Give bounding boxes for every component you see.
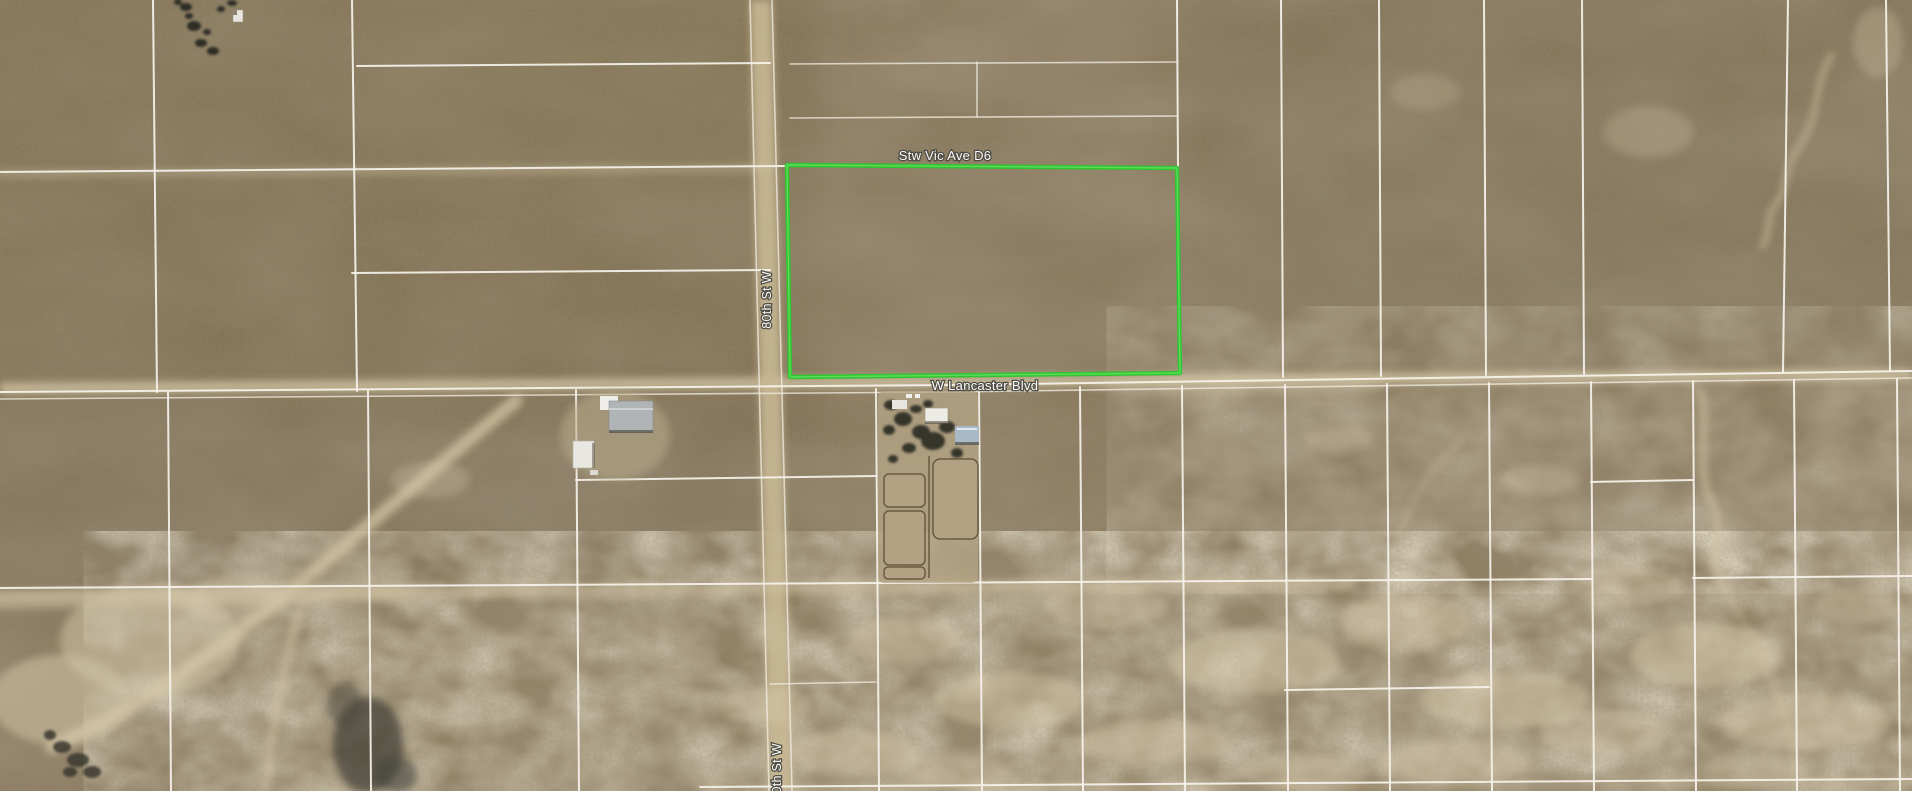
road-label-80th-st-lower: 80th St W (770, 743, 784, 791)
house-shadow (609, 430, 653, 433)
white-shed (573, 441, 594, 468)
road-label-ave-d6: Stw Vic Ave D6 (899, 148, 992, 163)
shed-shadow (592, 443, 595, 468)
barn-shadow (955, 442, 979, 445)
road-label-lancaster-blvd: W Lancaster Blvd (932, 378, 1039, 393)
farm-house-shadow (925, 421, 948, 424)
west-farmstead (560, 390, 670, 480)
vehicle (915, 394, 920, 398)
east-farmstead (878, 391, 979, 583)
small-outbuilding (590, 470, 598, 475)
satellite-map[interactable]: Stw Vic Ave D6 W Lancaster Blvd 80th St … (0, 0, 1912, 791)
house-gray-roof (609, 401, 653, 432)
parcel-line (1177, 0, 1178, 167)
vehicle (906, 394, 912, 398)
farm-house (925, 408, 948, 423)
white-outbuilding (892, 400, 907, 409)
map-canvas: Stw Vic Ave D6 W Lancaster Blvd 80th St … (0, 0, 1912, 791)
small-structure-north (233, 10, 243, 22)
road-label-80th-st-upper: 80th St W (760, 271, 774, 329)
